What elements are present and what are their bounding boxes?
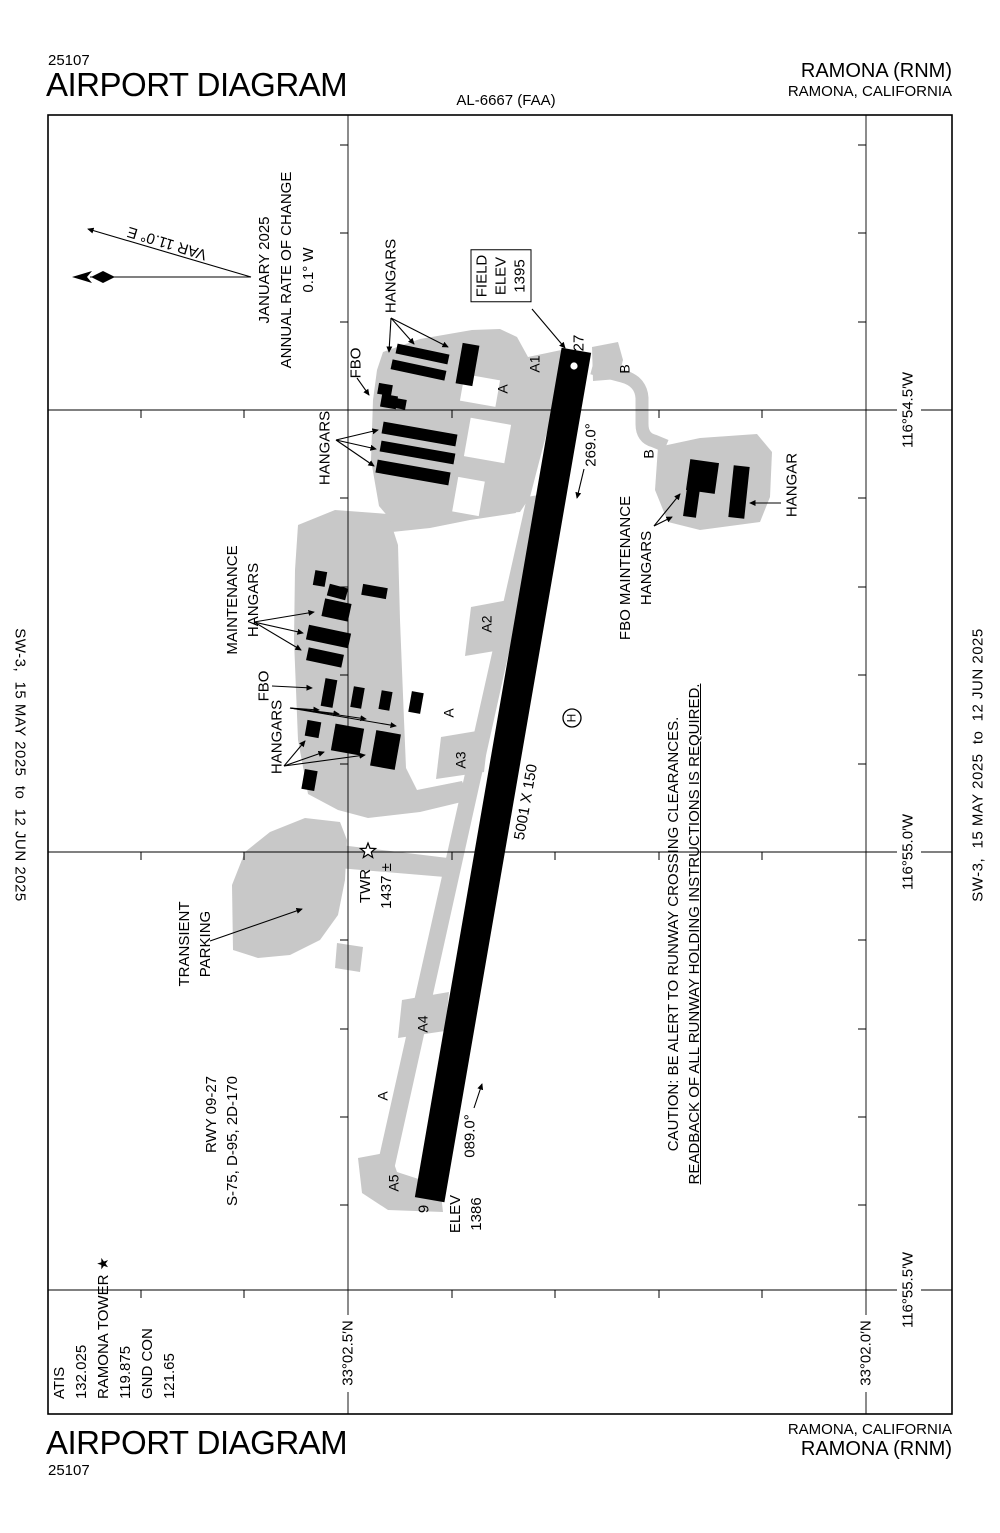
runway-end-dot <box>570 362 577 369</box>
transient-parking-label-line: PARKING <box>195 901 216 986</box>
fbo-north-label-line: FBO <box>348 348 365 379</box>
airport-city-top: RAMONA, CALIFORNIA <box>788 83 952 100</box>
lon-116-55-5-label-line: 116°55.5′W <box>900 1252 917 1328</box>
taxiway-a-north-label-line: A <box>495 384 512 393</box>
taxiway-a1-label: A1 <box>527 355 544 372</box>
fbo-building <box>395 398 407 410</box>
page-title-bottom: AIRPORT DIAGRAM <box>46 1424 347 1462</box>
hangars-west-label: HANGARS <box>317 411 334 485</box>
tower-label-line: TWR <box>355 863 376 909</box>
annual-rate-note-line: ANNUAL RATE OF CHANGE <box>276 172 298 369</box>
maintenance-hangars-label-line: MAINTENANCE <box>222 545 243 654</box>
taxiway-a5-label-line: A5 <box>386 1174 403 1191</box>
se-hangar-label: HANGAR <box>784 453 801 517</box>
field-elev-box-line: ELEV <box>492 255 511 298</box>
airport-diagram-page: 25107 AIRPORT DIAGRAM AL-6667 (FAA) RAMO… <box>0 0 1000 1533</box>
lon-116-55-0-label: 116°55.0′W <box>900 814 917 890</box>
fbo-mid-label-line: FBO <box>256 671 273 702</box>
al-number: AL-6667 (FAA) <box>456 92 555 109</box>
transient-parking-label: TRANSIENTPARKING <box>174 901 216 986</box>
lon-116-54-5-label: 116°54.5′W <box>900 372 917 448</box>
runway-data-label: RWY 09-27S-75, D-95, 2D-170 <box>201 1076 243 1206</box>
hangar-building <box>305 720 322 738</box>
field-elev-box: FIELDELEV1395 <box>471 250 532 303</box>
transient-stub <box>335 943 363 972</box>
field-elev-box-line: 1395 <box>511 255 530 298</box>
taxiway-a3-label: A3 <box>453 751 470 768</box>
fbo-maintenance-label-line: HANGARS <box>636 496 657 640</box>
taxiway-b-south-label-line: B <box>641 449 658 458</box>
hangar-building <box>408 691 423 714</box>
elev-9-label: ELEV1386 <box>445 1195 487 1233</box>
north-arrowhead <box>72 271 92 283</box>
fbo-maintenance-label-line: FBO MAINTENANCE <box>615 496 636 640</box>
taxiway-a-mid-label: A <box>441 708 458 717</box>
hangar-building <box>331 724 364 756</box>
threshold-9-label-line: 9 <box>416 1205 433 1213</box>
taxiway-a4-label: A4 <box>415 1015 432 1032</box>
runway-data-label-line: RWY 09-27 <box>201 1076 222 1206</box>
elev-9-label-line: ELEV <box>445 1195 466 1233</box>
threshold-27-label: 27 <box>571 335 588 352</box>
field-elev-box-line: FIELD <box>473 255 492 298</box>
taxiway-a-south-label: A <box>375 1091 392 1100</box>
north-arrow-diamond <box>91 271 115 283</box>
lat-33-02-5-label-line: 33°02.5′N <box>340 1320 357 1386</box>
threshold-9-label: 9 <box>416 1205 433 1213</box>
taxiway-a2-label-line: A2 <box>479 615 496 632</box>
hangars-north-label: HANGARS <box>383 239 400 313</box>
hangars-mid-label-line: HANGARS <box>269 700 286 774</box>
taxiway-a4-label-line: A4 <box>415 1015 432 1032</box>
taxiway-a-mid-label-line: A <box>441 708 458 717</box>
comm-frequencies: ATIS132.025RAMONA TOWER ★119.875GND CON1… <box>49 1257 181 1399</box>
maintenance-hangars-label: MAINTENANCEHANGARS <box>222 545 264 654</box>
runway-data-label-line: S-75, D-95, 2D-170 <box>222 1076 243 1206</box>
annual-rate-note: JANUARY 2025ANNUAL RATE OF CHANGE0.1° W <box>254 172 320 369</box>
taxiway-a-south-label-line: A <box>375 1091 392 1100</box>
hangars-west-label-line: HANGARS <box>317 411 334 485</box>
effective-date-left: SW-3, 15 MAY 2025 to 12 JUN 2025 <box>12 628 29 901</box>
lat-33-02-0-label-line: 33°02.0′N <box>858 1320 875 1386</box>
taxiway-b-north-label-line: B <box>617 364 634 373</box>
effective-date-right: SW-3, 15 MAY 2025 to 12 JUN 2025 <box>970 628 987 901</box>
heading-089-label-line: 089.0° <box>462 1114 479 1158</box>
lon-116-54-5-label-line: 116°54.5′W <box>900 372 917 448</box>
lon-116-55-0-label-line: 116°55.0′W <box>900 814 917 890</box>
se-hangar-label-line: HANGAR <box>784 453 801 517</box>
chart-number-bottom: 25107 <box>48 1462 90 1479</box>
comm-frequencies-line: 121.65 <box>159 1257 181 1399</box>
taxiway-a3-label-line: A3 <box>453 751 470 768</box>
airport-name-bottom: RAMONA (RNM) <box>788 1438 952 1461</box>
taxiway-a2-label: A2 <box>479 615 496 632</box>
taxiway-a-north-label: A <box>495 384 512 393</box>
tower-label-line: 1437 ± <box>376 863 397 909</box>
annual-rate-note-line: JANUARY 2025 <box>254 172 276 369</box>
caution-note: CAUTION: BE ALERT TO RUNWAY CROSSING CLE… <box>663 684 705 1185</box>
transient-apron <box>232 818 347 958</box>
header-airport-block: RAMONA (RNM) RAMONA, CALIFORNIA <box>788 60 952 100</box>
airport-name-top: RAMONA (RNM) <box>788 60 952 83</box>
fbo-north-label: FBO <box>348 348 365 379</box>
maintenance-hangars-label-line: HANGARS <box>243 545 264 654</box>
helipad-h-label-line: H <box>564 714 581 723</box>
footer-airport-block: RAMONA, CALIFORNIA RAMONA (RNM) <box>788 1421 952 1461</box>
helipad-h-label: H <box>564 714 581 723</box>
comm-frequencies-line: ATIS <box>49 1257 71 1399</box>
hangars-north-label-line: HANGARS <box>383 239 400 313</box>
lat-33-02-0-label: 33°02.0′N <box>858 1320 875 1386</box>
fbo-mid-label: FBO <box>256 671 273 702</box>
comm-frequencies-line: 132.025 <box>71 1257 93 1399</box>
comm-frequencies-line: GND CON <box>137 1257 159 1399</box>
hangars-mid-label: HANGARS <box>269 700 286 774</box>
taxiway-a1-label-line: A1 <box>527 355 544 372</box>
caution-note-line: CAUTION: BE ALERT TO RUNWAY CROSSING CLE… <box>663 684 684 1185</box>
airport-city-bottom: RAMONA, CALIFORNIA <box>788 1421 952 1438</box>
maintenance-hangar-building <box>313 570 327 587</box>
threshold-27-label-line: 27 <box>571 335 588 352</box>
lat-33-02-5-label: 33°02.5′N <box>340 1320 357 1386</box>
taxiway-a5-label: A5 <box>386 1174 403 1191</box>
heading-269-label: 269.0° <box>583 423 600 467</box>
fbo-building <box>380 394 398 410</box>
transient-parking-label-line: TRANSIENT <box>174 901 195 986</box>
fbo-maintenance-label: FBO MAINTENANCEHANGARS <box>615 496 657 640</box>
page-title-top: AIRPORT DIAGRAM <box>46 66 347 104</box>
heading-269-label-line: 269.0° <box>583 423 600 467</box>
taxiway-b-north-label: B <box>617 364 634 373</box>
annual-rate-note-line: 0.1° W <box>298 172 320 369</box>
taxiway-b-south-label: B <box>641 449 658 458</box>
tower-label: TWR1437 ± <box>355 863 397 909</box>
heading-089-label: 089.0° <box>462 1114 479 1158</box>
comm-frequencies-line: 119.875 <box>115 1257 137 1399</box>
caution-note-line: READBACK OF ALL RUNWAY HOLDING INSTRUCTI… <box>684 684 705 1185</box>
apron-cutout <box>464 418 511 464</box>
lon-116-55-5-label: 116°55.5′W <box>900 1252 917 1328</box>
comm-frequencies-line: RAMONA TOWER ★ <box>93 1257 115 1399</box>
elev-9-label-line: 1386 <box>466 1195 487 1233</box>
